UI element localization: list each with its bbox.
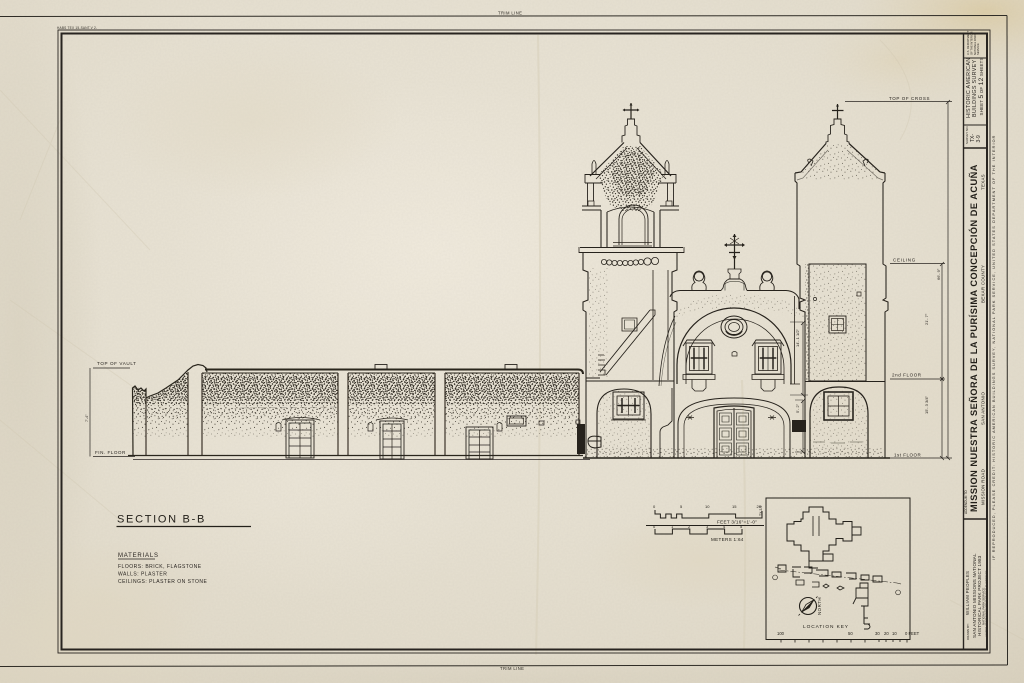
svg-text:1st FLOOR: 1st FLOOR: [894, 453, 922, 458]
svg-text:50: 50: [848, 631, 853, 636]
svg-text:CEILING: CEILING: [893, 258, 916, 263]
svg-text:TOP OF CROSS: TOP OF CROSS: [889, 96, 930, 101]
svg-text:7'-4": 7'-4": [85, 414, 89, 422]
svg-text:14'- 1 1/2": 14'- 1 1/2": [795, 328, 800, 347]
svg-text:BUILDINGS SURVEY: BUILDINGS SURVEY: [972, 59, 978, 117]
svg-text:HABS TEX 15-SANT.V 2-: HABS TEX 15-SANT.V 2-: [57, 26, 97, 30]
svg-text:WILLIAM PEOPLES: WILLIAM PEOPLES: [965, 571, 970, 615]
svg-text:ADDENDUM TO: ADDENDUM TO: [964, 490, 968, 514]
svg-text:TEXAS: TEXAS: [981, 174, 986, 190]
svg-text:METERS 1:64: METERS 1:64: [711, 537, 744, 542]
svg-text:CEILINGS: PLASTER ON STONE: CEILINGS: PLASTER ON STONE: [118, 579, 207, 585]
svg-text:NATIONAL PARK: NATIONAL PARK: [973, 34, 977, 55]
svg-text:21'- 7": 21'- 7": [924, 313, 929, 325]
svg-text:10: 10: [892, 631, 897, 636]
svg-text:TOP OF VAULT: TOP OF VAULT: [97, 361, 137, 366]
svg-text:NORTH: NORTH: [817, 597, 822, 615]
svg-text:MISSION ROAD: MISSION ROAD: [981, 469, 986, 505]
svg-text:TRIM LINE: TRIM LINE: [500, 666, 524, 671]
svg-text:3-9: 3-9: [976, 135, 982, 142]
svg-text:DRAWN BY:: DRAWN BY:: [966, 623, 970, 640]
svg-text:UNITED STATES DEPARTMENT OF TH: UNITED STATES DEPARTMENT OF THE INTERIOR: [985, 570, 989, 637]
svg-text:OF THE INTERIOR: OF THE INTERIOR: [969, 32, 973, 55]
svg-text:TRIM LINE: TRIM LINE: [498, 11, 522, 16]
svg-text:10: 10: [705, 504, 710, 509]
svg-text:20: 20: [884, 631, 889, 636]
svg-text:LOCATION KEY: LOCATION KEY: [803, 624, 849, 630]
svg-text:IF REPRODUCED, PLEASE CREDIT:: IF REPRODUCED, PLEASE CREDIT: HISTORIC A…: [992, 134, 996, 560]
svg-text:15'- 3 3/4": 15'- 3 3/4": [924, 395, 929, 414]
svg-text:15: 15: [732, 504, 737, 509]
svg-text:BEXAR COUNTY: BEXAR COUNTY: [981, 265, 986, 303]
svg-text:SAN ANTONIO: SAN ANTONIO: [981, 391, 986, 425]
svg-text:FIN. FLOOR: FIN. FLOOR: [95, 450, 126, 455]
svg-text:MISSION NUESTRA SEÑORA DE LA P: MISSION NUESTRA SEÑORA DE LA PURÍSIMA CO…: [968, 164, 979, 512]
svg-text:5'- 2": 5'- 2": [795, 403, 800, 413]
svg-text:MATERIALS: MATERIALS: [118, 553, 159, 559]
svg-text:FLOORS: BRICK, FLAGSTONE: FLOORS: BRICK, FLAGSTONE: [118, 564, 202, 570]
svg-text:SHEET 5 OF 12 SHEETS: SHEET 5 OF 12 SHEETS: [978, 57, 985, 115]
svg-text:66'- 9": 66'- 9": [936, 268, 941, 280]
svg-text:U.S. DEPARTMENT: U.S. DEPARTMENT: [966, 30, 970, 55]
svg-text:SURVEY NO.: SURVEY NO.: [965, 125, 969, 144]
svg-text:TX-3-9: TX-3-9: [759, 506, 763, 516]
svg-text:30: 30: [875, 631, 880, 636]
svg-text:100: 100: [777, 631, 785, 636]
svg-text:0 FEET: 0 FEET: [905, 631, 920, 636]
svg-text:HISTORIC AMERICAN: HISTORIC AMERICAN: [966, 58, 972, 118]
svg-text:WALLS: PLASTER: WALLS: PLASTER: [118, 572, 167, 578]
svg-text:SECTION B-B: SECTION B-B: [117, 514, 206, 526]
svg-text:SERVICE: SERVICE: [976, 43, 980, 55]
svg-text:2nd FLOOR: 2nd FLOOR: [892, 373, 922, 378]
